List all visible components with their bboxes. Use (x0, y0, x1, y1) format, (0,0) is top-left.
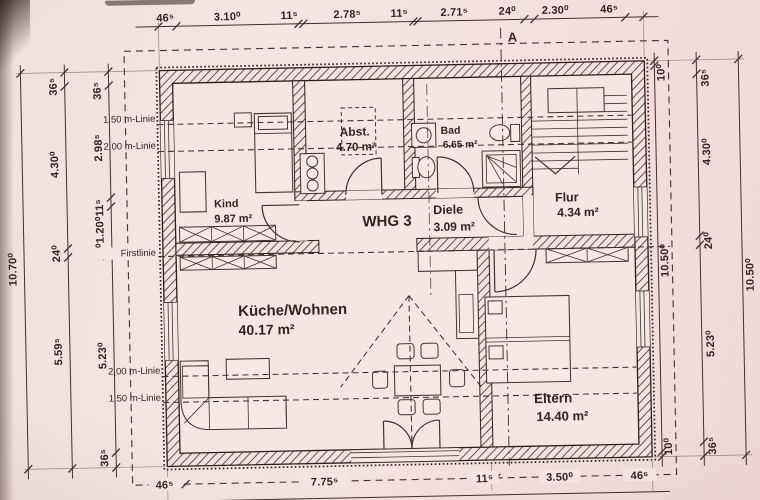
eltern-name: Eltern (534, 390, 573, 406)
dim-right-mid-2: 4.30⁰ (701, 138, 714, 165)
window-kind-left (160, 120, 174, 178)
kind-nightstand (234, 113, 251, 127)
flur-area: 4.34 m² (557, 205, 599, 220)
wall-kind-kueche (176, 240, 319, 255)
kind-desk (179, 172, 206, 213)
window-kueche-left (164, 302, 178, 360)
section-marker-a: A (508, 29, 518, 44)
label-150-top: 1.50 m-Linie (103, 114, 155, 126)
dim-right-inner-1: 10⁰ (655, 63, 667, 81)
dim-bottom-1: 46⁵ (156, 479, 174, 491)
kind-area: 9.87 m² (214, 213, 252, 226)
dim-top-5: 11⁵ (390, 8, 408, 20)
window-eltern-right (636, 291, 650, 347)
dim-top-4: 2.78⁵ (333, 9, 361, 22)
dim-left-inner-5: 36⁵ (99, 449, 111, 467)
dim-right-outer: 10.50⁰ (744, 258, 757, 292)
whg-label: WHG 3 (362, 213, 412, 231)
diele-area: 3.09 m² (433, 219, 475, 234)
dim-left-mid-1: 36⁵ (47, 78, 59, 96)
chair (423, 399, 440, 414)
shower (482, 150, 521, 187)
label-200-bottom: 2,00 m-Linie (108, 366, 160, 378)
washbasin (411, 123, 435, 147)
floorplan-photo: 46⁵ 3.10⁰ 11⁵ 2.78⁵ 11⁵ 2.71⁵ 24⁰ 2.30⁰ … (0, 0, 760, 500)
kueche-name: Küche/Wohnen (238, 301, 347, 320)
floorplan-drawing: 46⁵ 3.10⁰ 11⁵ 2.78⁵ 11⁵ 2.71⁵ 24⁰ 2.30⁰ … (0, 0, 760, 500)
coffee-table (226, 358, 269, 379)
dim-top-9: 46⁵ (600, 3, 618, 15)
dim-top-2: 3.10⁰ (214, 11, 241, 24)
label-150-bottom: 1,50 m-Linie (109, 393, 161, 405)
dining-table (394, 365, 441, 396)
kueche-area: 40.17 m² (238, 321, 295, 338)
dim-left-mid-4: 5.59⁵ (53, 338, 66, 366)
label-firstlinie: Firstlinie (121, 248, 157, 260)
dim-line-bottom-2 (145, 491, 670, 500)
dim-left-inner-4: 5.23⁰ (97, 342, 110, 369)
chair (421, 343, 438, 358)
washing-machine-column (300, 153, 325, 193)
dim-left-mid-2: 4.30⁰ (49, 151, 62, 178)
window-flur-right (634, 187, 648, 237)
kueche-wardrobe (180, 255, 276, 270)
dim-right-mid-1: 36⁵ (699, 69, 711, 87)
dim-left-mid-3: 24⁰ (51, 245, 63, 263)
label-200-top: 2.00 m-Linie (103, 141, 155, 153)
diele-name: Diele (433, 203, 463, 218)
bad-name: Bad (441, 125, 461, 137)
plan-group: 46⁵ 3.10⁰ 11⁵ 2.78⁵ 11⁵ 2.71⁵ 24⁰ 2.30⁰ … (2, 1, 760, 500)
abst-name: Abst. (339, 124, 369, 139)
dim-top-3: 11⁵ (280, 10, 298, 22)
chair (397, 344, 414, 359)
chair (372, 371, 387, 388)
dim-top-8: 2.30⁰ (542, 4, 569, 17)
dim-bottom-4: 3.50⁰ (546, 471, 573, 484)
dim-right-mid-5: 36⁵ (707, 436, 719, 454)
dim-left-outer: 10.70⁰ (7, 252, 20, 286)
eltern-wardrobe (546, 247, 628, 263)
dim-right-mid-4: 5.23⁰ (705, 330, 718, 357)
dim-bottom-2: 7.75⁵ (311, 476, 339, 489)
dim-bottom-3: 11⁵ (476, 473, 494, 485)
eltern-area: 14.40 m² (536, 408, 589, 424)
terrace-door-opening (351, 448, 459, 463)
chair (398, 400, 415, 415)
wc-2 (490, 124, 520, 142)
dim-top-7: 24⁰ (498, 5, 516, 17)
kind-name: Kind (214, 198, 239, 210)
dim-right-mid-3: 24⁰ (703, 231, 715, 249)
kind-wardrobe (180, 225, 276, 242)
bad-area: 6.65 m² (443, 139, 478, 151)
wc (412, 157, 435, 178)
dim-right-inner-2: 10.50⁰ (659, 243, 672, 277)
dim-top-1: 46⁵ (156, 12, 174, 24)
abst-area: 4.70 m² (336, 141, 376, 154)
dim-left-inner-1: 36⁵ (92, 82, 104, 100)
dim-right-inner-3: 10⁰ (663, 437, 675, 455)
dim-ticks-bottom (164, 471, 657, 489)
dim-top-6: 2.71⁵ (440, 6, 468, 19)
flur-name: Flur (555, 190, 579, 204)
chair (449, 370, 464, 387)
dim-bottom-5: 46⁵ (630, 470, 648, 482)
